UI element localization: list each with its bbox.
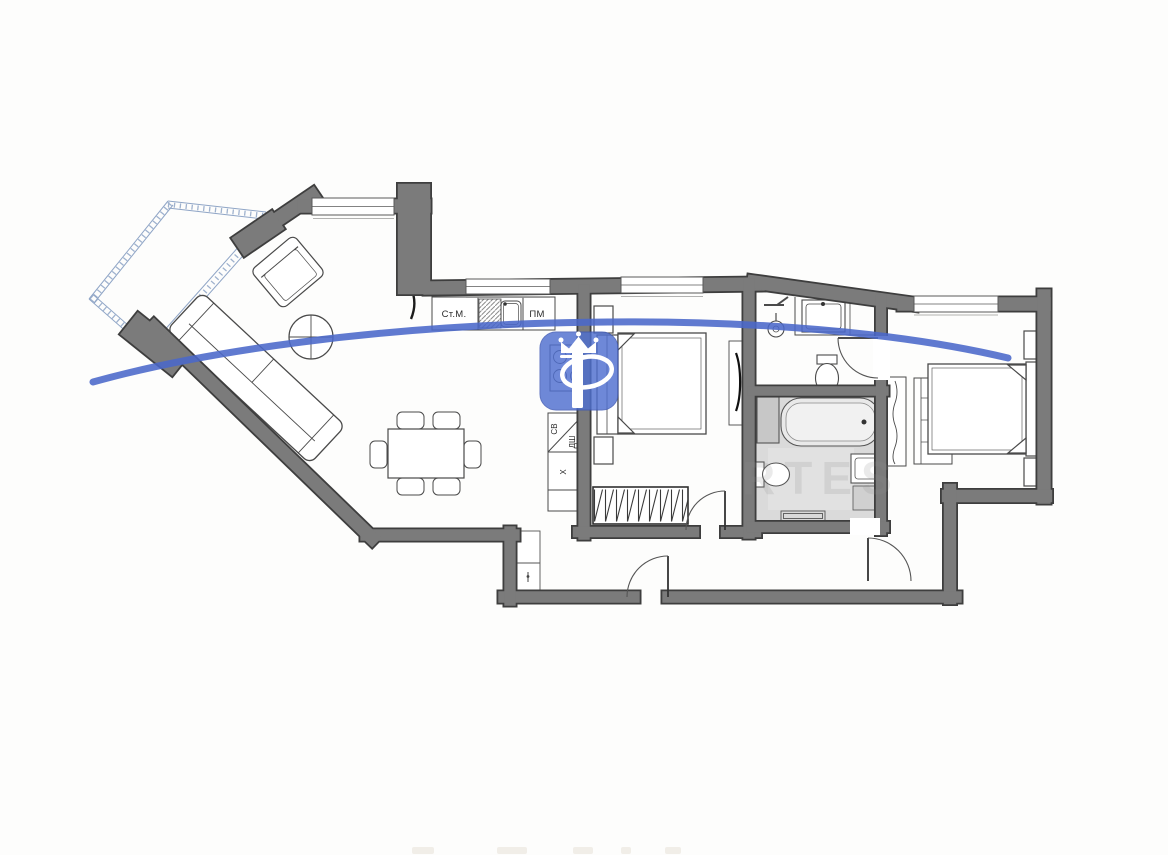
fridge-label: Х: [559, 469, 568, 475]
window-bedroom2: [914, 296, 998, 312]
window-bedroom1: [621, 277, 703, 293]
dining-chair: [370, 441, 387, 468]
washing-machine-label: Ст.М.: [442, 309, 467, 320]
watermark-logo: [540, 332, 618, 411]
dining-chair: [397, 478, 424, 495]
oven-label: ДШ: [568, 436, 577, 449]
window-living: [312, 198, 394, 215]
wc-furniture: [764, 297, 881, 393]
bath-door-opening: [850, 518, 880, 535]
bathroom-door: [868, 538, 911, 581]
floor-plan-svg: Ст.М. ПМ СВ ДШ Х RTES: [0, 0, 1168, 855]
dishwasher-label: ПМ: [529, 309, 544, 320]
living-room-furniture: [167, 235, 481, 495]
bed-double: [618, 333, 706, 434]
scanned-floor-plan-page: Ст.М. ПМ СВ ДШ Х RTES: [0, 0, 1168, 855]
dining-chair: [433, 412, 460, 429]
microwave-label: СВ: [550, 423, 559, 434]
scan-artifacts: [412, 847, 681, 854]
towel-rail: [764, 297, 788, 337]
dining-chair: [433, 478, 460, 495]
bath-cabinet: [757, 397, 779, 443]
dining-chair: [397, 412, 424, 429]
wardrobe-hatched: [593, 487, 688, 524]
bed-double: [928, 364, 1026, 454]
nightstand: [594, 437, 613, 464]
wc-door: [838, 338, 878, 378]
bedroom1-door: [686, 491, 725, 530]
bathtub: [781, 398, 880, 446]
dining-table: [370, 412, 481, 495]
faint-watermark-text: RTES: [742, 452, 901, 504]
wc-door-opening: [873, 336, 890, 380]
bedroom2-furniture: [884, 331, 1042, 486]
window-kitchen: [466, 279, 550, 294]
dining-chair: [464, 441, 481, 468]
